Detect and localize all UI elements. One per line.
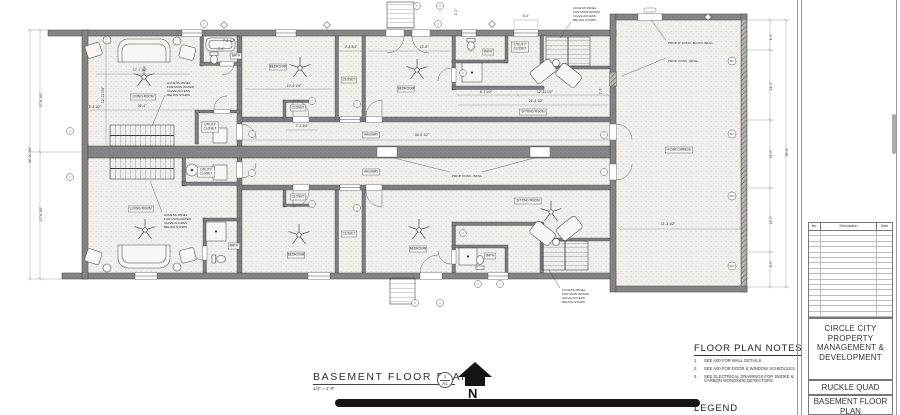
svg-text:ACCESS PANELFOR MAIN WATERVALV: ACCESS PANELFOR MAIN WATERVALVE ACCESSBE… (573, 6, 601, 22)
window-tag-marker (489, 21, 496, 28)
door-tag-marker (460, 230, 467, 237)
room-label: BEDROOM (287, 252, 304, 258)
door-opening (237, 124, 243, 140)
dimension-text: 17'-7 1/2" (133, 68, 148, 72)
door-opening (420, 273, 442, 280)
svg-text:4-CAR GARAGE: 4-CAR GARAGE (667, 147, 691, 151)
title-bar-rule (335, 399, 700, 407)
door-opening (452, 250, 457, 264)
dimension-text: 13'-0" (420, 45, 429, 49)
north-arrow-icon (458, 362, 492, 386)
sheet-border-line (896, 0, 897, 415)
note-item: 3.SEE ELECTRICAL DRAWINGS FOR SMOKE & CA… (694, 375, 804, 385)
room-label: SITTING ROOM (514, 198, 542, 204)
window-tag-marker (221, 22, 228, 29)
dimension-text: 7'-7" (599, 87, 603, 95)
dimension-text: 7'-4" (218, 47, 226, 51)
toilet (467, 39, 475, 51)
svg-text:SITTING ROOM: SITTING ROOM (521, 109, 545, 113)
scrollbar-thumb[interactable] (892, 114, 896, 154)
door-opening (203, 246, 208, 260)
toilet (476, 256, 484, 270)
company-name-block: CIRCLE CITY PROPERTY MANAGEMENT & DEVELO… (808, 318, 893, 380)
drawing-sheet: ACCESS PANELFOR MAIN WATERVALVE ACCESSBE… (0, 0, 900, 415)
room-label: HALLWAY (362, 169, 379, 175)
door-tag-marker (249, 170, 256, 177)
detail-reference-bubble: 1 A1 (437, 372, 453, 388)
svg-text:B4: B4 (730, 264, 734, 268)
rev-col-date: Date (877, 223, 892, 230)
room-label: SITTING ROOM (519, 109, 547, 115)
wall-type-tag: B4 (728, 262, 736, 270)
svg-text:HALLWAY: HALLWAY (364, 169, 380, 173)
detail-sheet: A1 (438, 381, 452, 387)
door-tag-marker (460, 70, 467, 77)
svg-text:BATH: BATH (486, 253, 495, 257)
svg-text:B3: B3 (730, 194, 734, 198)
door-opening (220, 62, 234, 67)
room-label: UTILITYCLOSET (197, 167, 214, 177)
room-label: UTILITYCLOSET (511, 42, 528, 52)
shower (459, 248, 477, 265)
dimension-text: 7'-1 3/4" (296, 124, 309, 128)
door-tag-marker (201, 21, 208, 28)
dimension-text: 7'-8 1/2" (223, 39, 236, 43)
notes-title: FLOOR PLAN NOTES (694, 343, 802, 356)
wall-type-tag: B3 (728, 192, 736, 200)
dimension-text: 13'-0" (769, 81, 773, 90)
room-label: CLOSET (341, 77, 356, 83)
dimension-text: 2'-0" (454, 8, 458, 16)
window-opening (514, 30, 538, 37)
door-tag-marker (67, 174, 74, 181)
exterior-stair (387, 2, 414, 28)
closet-door (340, 185, 360, 191)
door-opening (366, 117, 382, 123)
notes-list: 1.SEE A00 FOR WALL DETAILS.2.SEE A00 FOR… (694, 359, 804, 384)
room-label: BATH (230, 53, 241, 59)
dimension-text: 12'-11 1/4" (101, 86, 105, 103)
door-tag-marker (309, 201, 316, 208)
concrete-infill (377, 147, 397, 157)
svg-text:CLOSET: CLOSET (343, 231, 356, 235)
room-label: BEDROOM (269, 64, 286, 70)
toilet (212, 255, 226, 263)
company-line: MANAGEMENT & (809, 343, 892, 353)
svg-text:LIVING ROOM: LIVING ROOM (132, 94, 154, 98)
dimension-text: 12'-11 1/2" (537, 90, 554, 94)
plan-title-underline (313, 384, 455, 385)
door-tag-marker (249, 131, 256, 138)
room-label: HALLWAY (362, 132, 379, 138)
side-table (173, 263, 181, 271)
window-opening (276, 30, 296, 37)
toilet (210, 52, 218, 64)
company-line: DEVELOPMENT (809, 353, 892, 363)
dimension-text: 13'-0" (769, 215, 773, 224)
dimension-text: 4'-0" (769, 260, 773, 268)
svg-text:BEDROOM: BEDROOM (410, 246, 427, 250)
stair-run (542, 241, 588, 270)
shower (206, 222, 226, 241)
stair-run (110, 158, 174, 179)
concrete-infill (530, 147, 550, 157)
door-opening (293, 117, 309, 123)
window-tag-marker (324, 22, 331, 29)
door-opening (610, 124, 617, 140)
room-label: UTILITYCLOSET (201, 122, 218, 132)
dimension-text: 11'-3 1/2" (661, 222, 676, 226)
dimension-text: 34'-10 1/2" (28, 146, 32, 163)
exterior-stair (390, 278, 415, 304)
window-opening (308, 273, 330, 280)
svg-text:BATH: BATH (230, 243, 239, 247)
garage-infill-opening (638, 14, 662, 21)
room-label: BEDROOM (397, 86, 414, 92)
door-opening (386, 30, 404, 37)
note-item: 1.SEE A00 FOR WALL DETAILS. (694, 359, 804, 364)
rev-col-description: Description (821, 223, 877, 230)
existing-wall-hatch (742, 20, 747, 286)
window-opening (462, 30, 476, 37)
wall-type-tag: B1 (728, 57, 736, 65)
door-opening (610, 164, 617, 180)
dimension-text: 5'-0" (523, 14, 531, 18)
svg-text:UTILITYCLOSET: UTILITYCLOSET (200, 167, 213, 175)
room-label: CLOSET (341, 231, 356, 237)
door-tag-marker (412, 300, 419, 307)
door-tag-marker (435, 21, 442, 28)
dimension-text: 6'-7 1/2" (480, 90, 493, 94)
room-label: BATH (482, 49, 493, 55)
svg-text:LIVING ROOM: LIVING ROOM (130, 206, 152, 210)
svg-text:CLOSET: CLOSET (292, 105, 305, 109)
window-opening (182, 30, 202, 37)
svg-text:PROP. CONC. INFILL: PROP. CONC. INFILL (452, 174, 482, 178)
room-label: LIVING ROOM (128, 206, 154, 212)
door-tag-marker (437, 300, 444, 307)
access-panel-marker (644, 8, 656, 12)
dimension-text: 17'-6 1/2" (39, 206, 43, 221)
dimension-text: 4'-8 3/4" (345, 45, 358, 49)
door-tag-marker (67, 128, 74, 135)
svg-text:BATH: BATH (232, 53, 241, 57)
sheet-name-block: BASEMENT FLOOR PLAN (808, 395, 893, 415)
project-name: RUCKLE QUAD (809, 381, 892, 395)
dimension-text: 13'-0" (769, 149, 773, 158)
door-opening (214, 110, 230, 114)
dimension-text: 5'-3 1/2" (89, 105, 102, 109)
revision-table: No. Description Date (808, 222, 893, 318)
room-label: CLOSET (290, 105, 305, 111)
svg-text:B1: B1 (730, 59, 734, 63)
svg-text:ACCESS PANELFOR MAIN WATERVALV: ACCESS PANELFOR MAIN WATERVALVE ACCESSBE… (562, 288, 590, 304)
dimension-text: 34'-9 1/2" (415, 133, 430, 137)
closet-door (340, 117, 360, 123)
side-table (103, 264, 111, 272)
dimension-text: 39'-6" (785, 147, 789, 156)
side-table (103, 36, 111, 44)
svg-text:BEDROOM: BEDROOM (270, 64, 287, 68)
door-tag-marker (601, 169, 608, 176)
note-item: 2.SEE A00 FOR DOOR & WINDOW SCHEDULES. (694, 367, 804, 372)
sofa (118, 39, 170, 62)
washer-dryer (213, 165, 227, 180)
svg-text:UTILITYCLOSET: UTILITYCLOSET (514, 42, 527, 50)
svg-text:CLOSET: CLOSET (292, 194, 305, 198)
sofa (118, 245, 170, 268)
svg-text:HALLWAY: HALLWAY (364, 132, 380, 136)
window-opening (488, 273, 508, 280)
room-label: BATH (228, 243, 239, 249)
svg-text:SITTING ROOM: SITTING ROOM (516, 198, 540, 202)
wall-type-tag: B2 (728, 130, 736, 138)
door-tag-marker (497, 281, 504, 288)
sheet-border-line (801, 0, 802, 415)
side-table (553, 60, 560, 67)
svg-text:B2: B2 (730, 132, 734, 136)
sheet-name-line: PLAN (809, 407, 892, 415)
floor-plan-notes: FLOOR PLAN NOTES 1.SEE A00 FOR WALL DETA… (694, 338, 804, 384)
room-label: 4-CAR GARAGE (665, 147, 693, 153)
detail-number: 1 (440, 373, 450, 381)
svg-text:BEDROOM: BEDROOM (398, 86, 415, 90)
side-table (173, 37, 181, 45)
revision-row (809, 312, 892, 317)
room-label: CLOSET (290, 194, 305, 200)
infill-opening (610, 72, 617, 86)
door-opening (412, 30, 430, 37)
project-name-block: RUCKLE QUAD (808, 380, 893, 395)
room-label: BEDROOM (409, 246, 426, 252)
svg-text:BEDROOM: BEDROOM (288, 252, 305, 256)
svg-text:CLOSET: CLOSET (343, 77, 356, 81)
door-opening (293, 185, 309, 191)
side-table (553, 239, 560, 246)
room-label: LIVING ROOM (130, 94, 156, 100)
door-opening (452, 68, 457, 82)
stair-run (110, 125, 174, 146)
revision-table-header: No. Description Date (809, 223, 892, 231)
water-heater (186, 164, 198, 176)
door-tag-marker (309, 98, 316, 105)
sheet-border-line (797, 0, 798, 415)
company-line: CIRCLE CITY (809, 324, 892, 334)
dimension-text: 10'-4 1/4" (287, 84, 302, 88)
svg-text:PROP. CONC. INFILL: PROP. CONC. INFILL (668, 59, 698, 63)
legend-title: LEGEND (694, 403, 780, 415)
door-opening (237, 162, 243, 178)
door-tag-marker (354, 205, 361, 212)
door-tag-marker (601, 132, 608, 139)
door-tag-marker (475, 281, 482, 288)
company-line: PROPERTY (809, 334, 892, 344)
sheet-name-line: BASEMENT FLOOR (809, 397, 892, 407)
svg-text:BATH: BATH (484, 49, 493, 53)
dimension-text: 4'-0" (769, 33, 773, 41)
dimension-text: 21'-4 1/2" (529, 99, 544, 103)
svg-text:UTILITYCLOSET: UTILITYCLOSET (204, 122, 217, 130)
door-tag-marker (354, 101, 361, 108)
door-tag-marker (414, 3, 421, 10)
dimension-text: 17'-6 1/2" (39, 92, 43, 107)
dimension-text: 16'-4" (138, 104, 147, 108)
room-label: BATH (484, 253, 495, 259)
svg-text:PROP. 8" CONC. BLOCK INFILL: PROP. 8" CONC. BLOCK INFILL (668, 41, 714, 45)
north-arrow: N (456, 362, 496, 404)
rev-col-no: No. (809, 223, 821, 230)
door-opening (366, 185, 382, 191)
window-opening (135, 273, 157, 280)
door-tag-marker (437, 3, 444, 10)
legend: LEGEND (694, 398, 780, 415)
